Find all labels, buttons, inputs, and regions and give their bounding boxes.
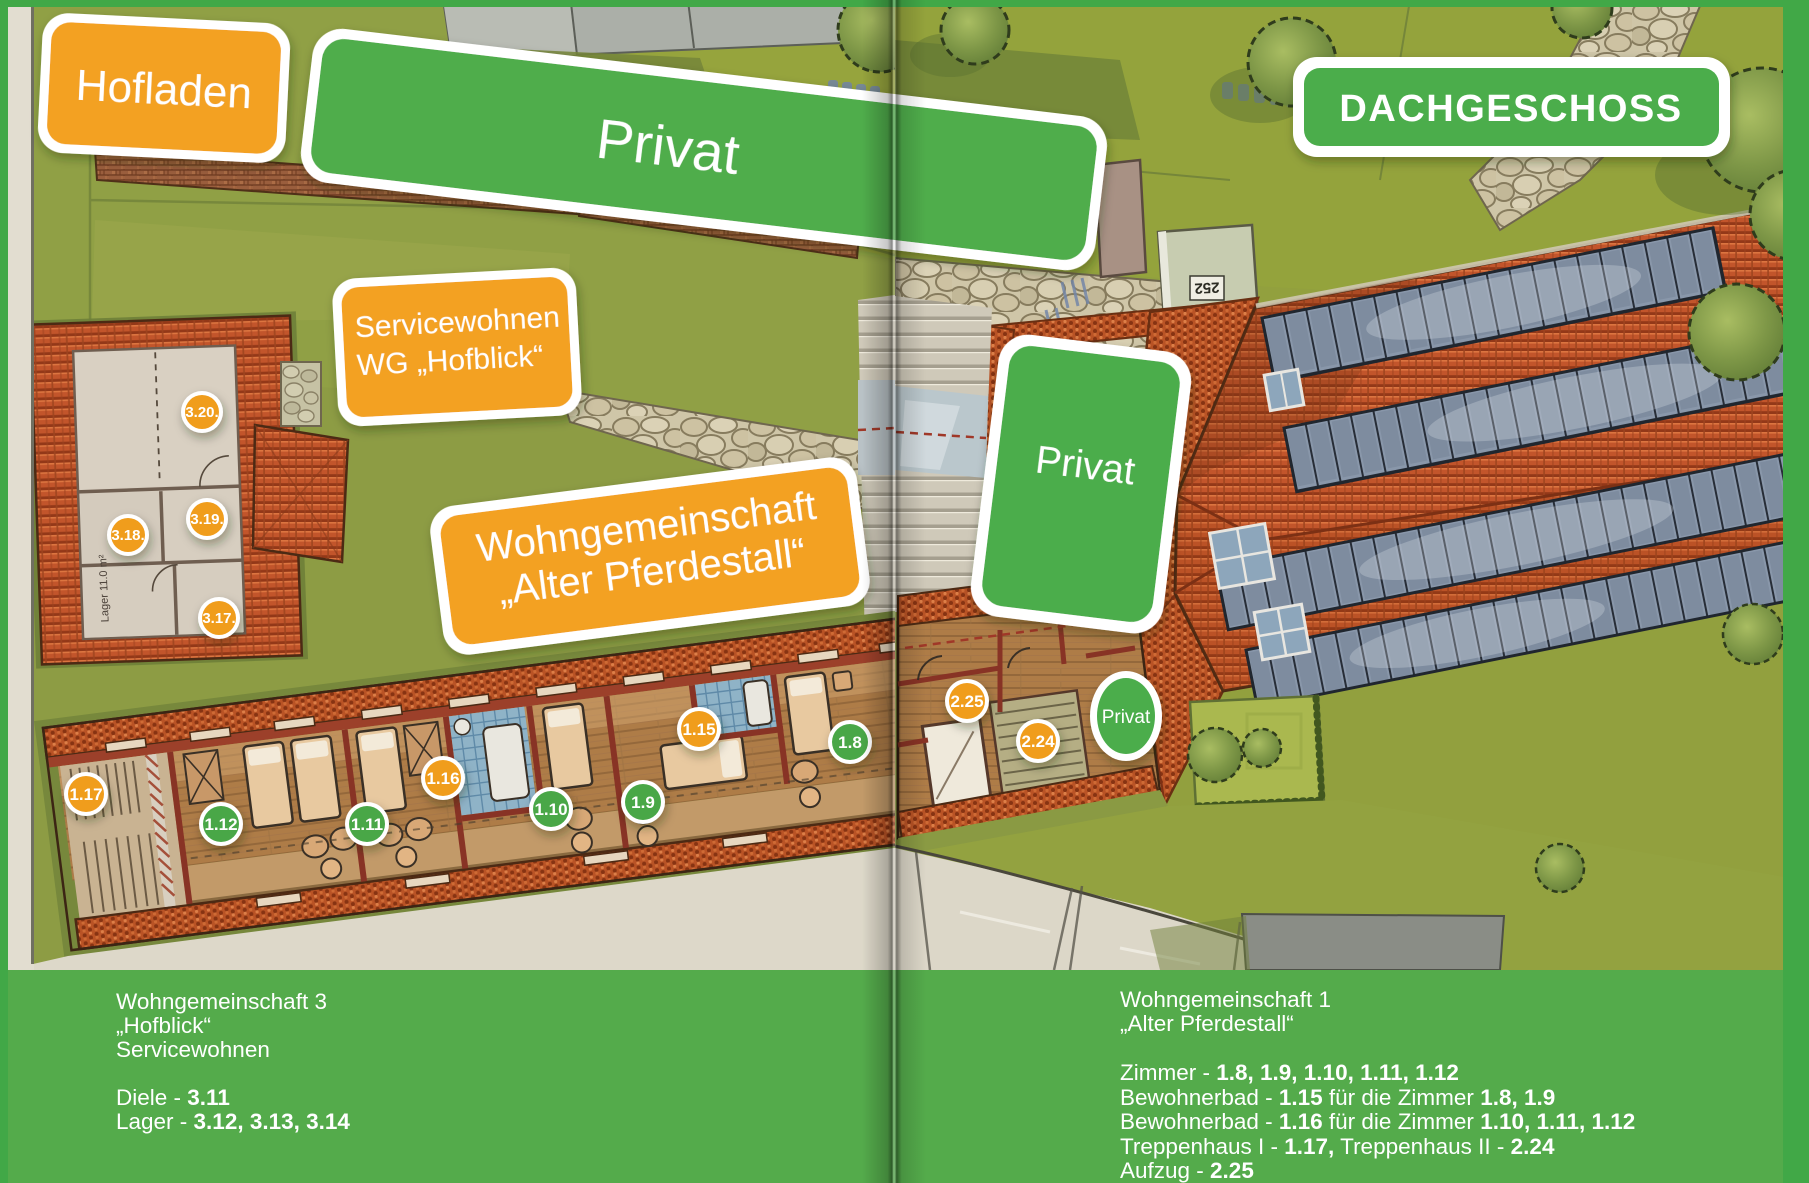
svg-text:„Hofblick“: „Hofblick“ — [116, 1013, 211, 1038]
svg-text:1.8: 1.8 — [838, 733, 862, 752]
svg-text:252: 252 — [1194, 278, 1220, 296]
svg-text:Wohngemeinschaft 1: Wohngemeinschaft 1 — [1120, 987, 1331, 1012]
svg-text:1.16: 1.16 — [426, 769, 459, 788]
svg-text:Privat: Privat — [1102, 707, 1151, 728]
svg-text:3.20.: 3.20. — [185, 404, 218, 421]
svg-text:1.11: 1.11 — [351, 815, 383, 834]
svg-text:„Alter Pferdestall“: „Alter Pferdestall“ — [1120, 1011, 1294, 1036]
svg-text:Aufzug - 2.25: Aufzug - 2.25 — [1120, 1158, 1254, 1183]
svg-text:Servicewohnen: Servicewohnen — [116, 1037, 270, 1062]
svg-text:2.25: 2.25 — [950, 692, 983, 711]
svg-text:DACHGESCHOSS: DACHGESCHOSS — [1339, 88, 1682, 130]
svg-text:3.17.: 3.17. — [202, 610, 235, 627]
svg-text:3.19.: 3.19. — [190, 511, 223, 528]
svg-text:Zimmer - 1.8, 1.9, 1.10, 1.11,: Zimmer - 1.8, 1.9, 1.10, 1.11, 1.12 — [1120, 1060, 1459, 1085]
svg-text:Wohngemeinschaft 3: Wohngemeinschaft 3 — [116, 989, 327, 1014]
svg-text:Lager - 3.12, 3.13, 3.14: Lager - 3.12, 3.13, 3.14 — [116, 1109, 350, 1134]
svg-text:1.9: 1.9 — [631, 793, 655, 812]
svg-text:Diele - 3.11: Diele - 3.11 — [116, 1085, 230, 1110]
svg-text:1.17: 1.17 — [69, 785, 102, 804]
svg-text:1.12: 1.12 — [204, 815, 237, 834]
svg-text:Hofladen: Hofladen — [75, 61, 253, 119]
svg-text:1.15: 1.15 — [682, 720, 715, 739]
svg-text:2.24: 2.24 — [1021, 732, 1055, 751]
svg-text:1.10: 1.10 — [534, 800, 567, 819]
svg-text:Treppenhaus I - 1.17, Treppenh: Treppenhaus I - 1.17, Treppenhaus II - 2… — [1120, 1134, 1555, 1159]
svg-text:Lager 11.0 m²: Lager 11.0 m² — [97, 554, 111, 622]
svg-text:3.18.: 3.18. — [111, 527, 144, 544]
svg-text:Bewohnerbad - 1.16 für die Zim: Bewohnerbad - 1.16 für die Zimmer 1.10, … — [1120, 1109, 1635, 1134]
svg-text:Bewohnerbad - 1.15 für die Zim: Bewohnerbad - 1.15 für die Zimmer 1.8, 1… — [1120, 1085, 1555, 1110]
